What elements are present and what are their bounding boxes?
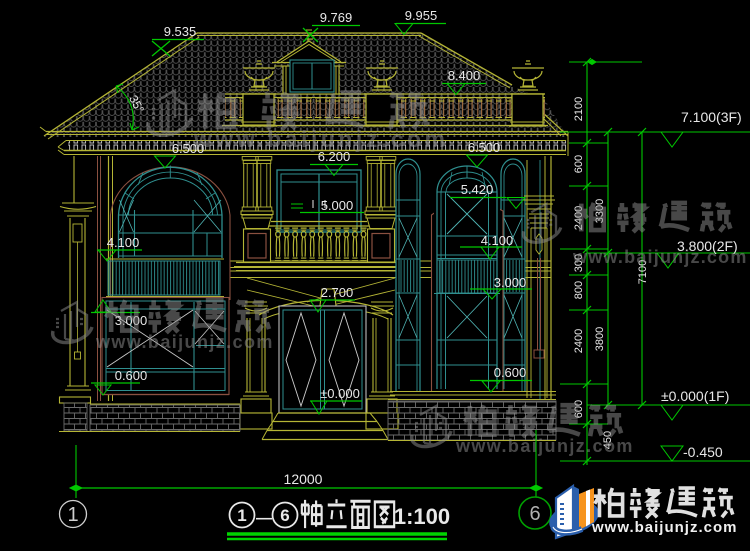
svg-text:1:100: 1:100 xyxy=(394,504,450,529)
svg-text:www.baijunjz.com: www.baijunjz.com xyxy=(95,332,274,352)
svg-text:0.600: 0.600 xyxy=(115,368,148,383)
svg-text:6: 6 xyxy=(280,506,289,525)
svg-text:6.500: 6.500 xyxy=(468,140,501,155)
svg-text:www.baijunjz.com: www.baijunjz.com xyxy=(455,436,634,456)
svg-text:www.baijunjz.com: www.baijunjz.com xyxy=(572,247,748,267)
svg-text:3.000: 3.000 xyxy=(494,275,527,290)
svg-text:2.700: 2.700 xyxy=(321,285,354,300)
svg-text:www.baijunjz.com: www.baijunjz.com xyxy=(591,519,737,536)
svg-text:7.100(3F): 7.100(3F) xyxy=(681,109,742,125)
svg-text:4.100: 4.100 xyxy=(481,233,514,248)
svg-text:3.000: 3.000 xyxy=(115,313,148,328)
svg-text:0.600: 0.600 xyxy=(494,365,527,380)
svg-text:9.535: 9.535 xyxy=(164,24,197,39)
svg-text:5.000: 5.000 xyxy=(321,198,354,213)
svg-text:±0.000(1F): ±0.000(1F) xyxy=(661,388,729,404)
svg-text:±0.000: ±0.000 xyxy=(320,386,360,401)
svg-text:800: 800 xyxy=(573,281,585,299)
svg-text:www.baijunjz.com: www.baijunjz.com xyxy=(193,126,449,152)
svg-text:2100: 2100 xyxy=(573,97,585,121)
svg-text:4.100: 4.100 xyxy=(107,235,140,250)
svg-text:12000: 12000 xyxy=(284,471,323,487)
svg-text:-0.450: -0.450 xyxy=(683,444,723,460)
svg-text:1: 1 xyxy=(67,504,78,526)
svg-text:9.769: 9.769 xyxy=(320,10,353,25)
svg-text:—: — xyxy=(256,510,272,527)
svg-text:5.420: 5.420 xyxy=(461,182,494,197)
svg-text:6: 6 xyxy=(529,503,540,525)
svg-text:9.955: 9.955 xyxy=(405,8,438,23)
svg-text:8.400: 8.400 xyxy=(448,68,481,83)
svg-text:600: 600 xyxy=(573,155,585,173)
svg-text:3800: 3800 xyxy=(594,327,606,351)
svg-text:2400: 2400 xyxy=(573,329,585,353)
svg-text:1: 1 xyxy=(237,506,246,525)
